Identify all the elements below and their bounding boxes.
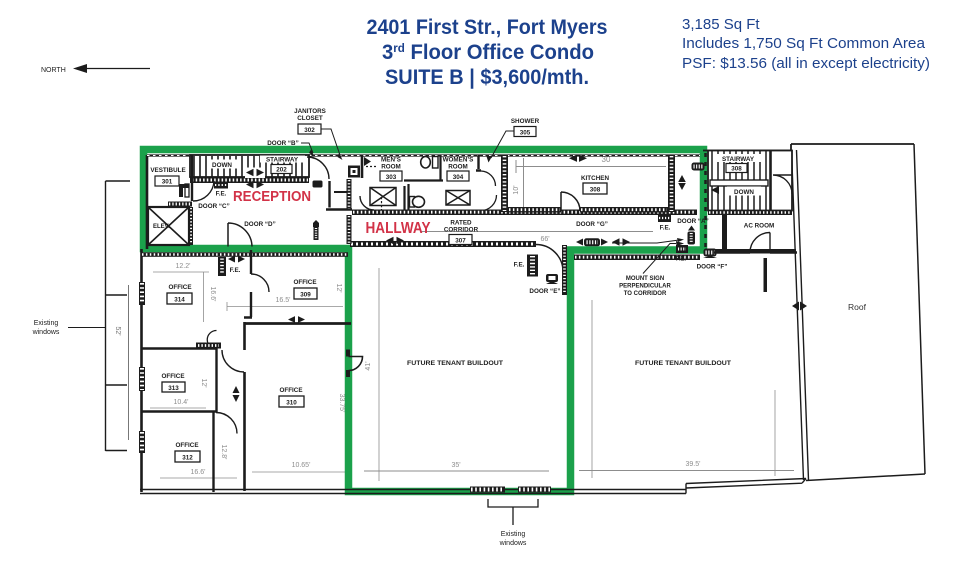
- svg-text:304: 304: [453, 174, 464, 181]
- svg-text:ROOM: ROOM: [381, 164, 401, 171]
- svg-text:OFFICE: OFFICE: [175, 442, 198, 449]
- svg-text:FUTURE TENANT BUILDOUT: FUTURE TENANT BUILDOUT: [407, 360, 503, 367]
- svg-text:PSF: $13.56 (all in except ele: PSF: $13.56 (all in except electricity): [682, 55, 930, 72]
- svg-text:310: 310: [286, 400, 297, 407]
- svg-text:35': 35': [451, 462, 460, 469]
- svg-text:10.65': 10.65': [292, 462, 311, 469]
- svg-text:66': 66': [540, 236, 549, 243]
- svg-text:SUITE B | $3,600/mth.: SUITE B | $3,600/mth.: [385, 66, 589, 89]
- svg-text:16.5': 16.5': [276, 297, 291, 304]
- svg-text:ELEV.: ELEV.: [153, 224, 170, 230]
- svg-text:302: 302: [304, 127, 315, 134]
- svg-text:39.5': 39.5': [686, 461, 701, 468]
- svg-text:F.E.: F.E.: [216, 191, 227, 198]
- svg-text:307: 307: [455, 238, 466, 245]
- svg-text:16.6': 16.6': [209, 287, 216, 302]
- svg-text:F.E.: F.E.: [230, 267, 241, 274]
- svg-text:12': 12': [335, 283, 342, 292]
- svg-text:2401 First Str., Fort Myers: 2401 First Str., Fort Myers: [367, 16, 608, 39]
- svg-text:314: 314: [174, 297, 185, 304]
- svg-text:PERPENDICULAR: PERPENDICULAR: [619, 284, 671, 290]
- svg-text:STAIRWAY: STAIRWAY: [722, 156, 755, 163]
- svg-text:OFFICE: OFFICE: [279, 387, 302, 394]
- svg-text:CLOSET: CLOSET: [297, 115, 323, 122]
- svg-text:41': 41': [365, 361, 372, 370]
- svg-text:10.4': 10.4': [174, 399, 189, 406]
- svg-text:DOOR “E”: DOOR “E”: [529, 288, 560, 295]
- svg-text:KITCHEN: KITCHEN: [581, 175, 609, 182]
- svg-text:F.E.: F.E.: [676, 257, 687, 263]
- svg-text:301: 301: [162, 179, 173, 186]
- svg-text:DOWN: DOWN: [212, 162, 232, 169]
- svg-text:windows: windows: [499, 540, 527, 547]
- svg-text:DOOR “G”: DOOR “G”: [576, 221, 608, 228]
- svg-text:CORRIDOR: CORRIDOR: [444, 227, 479, 234]
- svg-text:MOUNT SIGN: MOUNT SIGN: [626, 276, 664, 282]
- svg-text:Includes 1,750 Sq Ft Common Ar: Includes 1,750 Sq Ft Common Area: [682, 35, 926, 52]
- svg-text:10': 10': [513, 185, 520, 194]
- svg-text:DOOR “B”: DOOR “B”: [267, 140, 299, 147]
- svg-text:Existing: Existing: [34, 320, 59, 327]
- svg-text:RATED: RATED: [450, 220, 472, 227]
- svg-text:308: 308: [590, 187, 601, 194]
- svg-text:308: 308: [731, 166, 742, 173]
- svg-text:JANITORS: JANITORS: [294, 108, 326, 115]
- svg-text:303: 303: [386, 174, 397, 181]
- svg-text:33.75': 33.75': [338, 394, 345, 413]
- svg-text:313: 313: [168, 385, 179, 392]
- svg-text:DOOR “C”: DOOR “C”: [198, 203, 230, 210]
- svg-text:OFFICE: OFFICE: [161, 373, 184, 380]
- svg-text:F.E.: F.E.: [514, 262, 525, 269]
- svg-text:RECEPTION: RECEPTION: [233, 189, 311, 205]
- svg-text:SHOWER: SHOWER: [511, 118, 540, 125]
- svg-text:12.2': 12.2': [176, 263, 191, 270]
- svg-text:12': 12': [200, 378, 207, 387]
- svg-text:TO CORRIDOR: TO CORRIDOR: [624, 291, 667, 297]
- svg-text:3rd Floor Office Condo: 3rd Floor Office Condo: [382, 41, 594, 64]
- svg-text:309: 309: [300, 292, 311, 299]
- svg-text:OFFICE: OFFICE: [168, 284, 191, 291]
- svg-text:202: 202: [276, 167, 287, 174]
- svg-text:NORTH: NORTH: [41, 67, 66, 74]
- svg-text:305: 305: [520, 130, 531, 137]
- svg-text:OFFICE: OFFICE: [293, 279, 316, 286]
- svg-text:Roof: Roof: [848, 302, 867, 312]
- svg-text:12.8': 12.8': [220, 445, 227, 460]
- svg-text:52': 52': [114, 326, 121, 335]
- svg-text:STAIRWAY: STAIRWAY: [266, 157, 299, 164]
- svg-text:MEN’S: MEN’S: [381, 157, 401, 164]
- svg-text:FUTURE TENANT BUILDOUT: FUTURE TENANT BUILDOUT: [635, 360, 731, 367]
- svg-text:HALLWAY: HALLWAY: [366, 220, 432, 237]
- svg-text:WOMEN’S: WOMEN’S: [443, 157, 474, 164]
- svg-text:DOOR “A”: DOOR “A”: [677, 218, 709, 225]
- svg-text:3,185 Sq Ft: 3,185 Sq Ft: [682, 16, 760, 33]
- svg-text:DOOR “D”: DOOR “D”: [244, 221, 276, 228]
- svg-text:16.6': 16.6': [191, 469, 206, 476]
- svg-text:DOOR “F”: DOOR “F”: [697, 264, 728, 271]
- svg-text:312: 312: [182, 455, 193, 462]
- svg-text:windows: windows: [32, 329, 60, 336]
- svg-text:VESTIBULE: VESTIBULE: [150, 167, 185, 174]
- svg-text:ROOM: ROOM: [448, 164, 468, 171]
- svg-text:Existing: Existing: [501, 531, 526, 538]
- svg-text:AC ROOM: AC ROOM: [744, 223, 774, 230]
- svg-text:F.E.: F.E.: [660, 225, 671, 232]
- svg-text:DOWN: DOWN: [734, 189, 754, 196]
